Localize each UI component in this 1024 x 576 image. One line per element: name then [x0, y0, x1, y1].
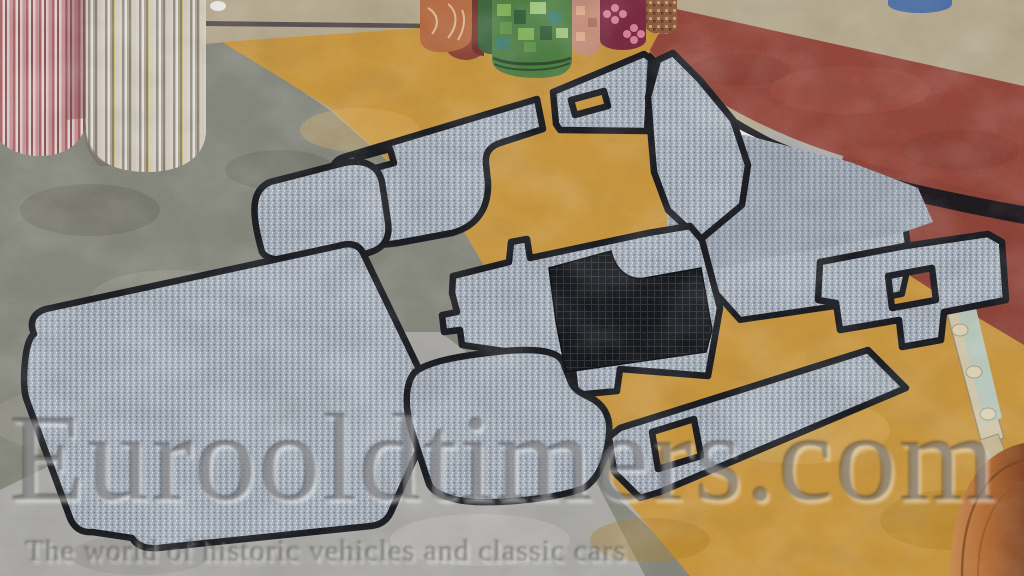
photo-scene: Eurooldtimers.com The world of historic … — [0, 0, 1024, 576]
scene-canvas — [0, 0, 1024, 576]
texture-overlay-fine — [0, 0, 1024, 576]
